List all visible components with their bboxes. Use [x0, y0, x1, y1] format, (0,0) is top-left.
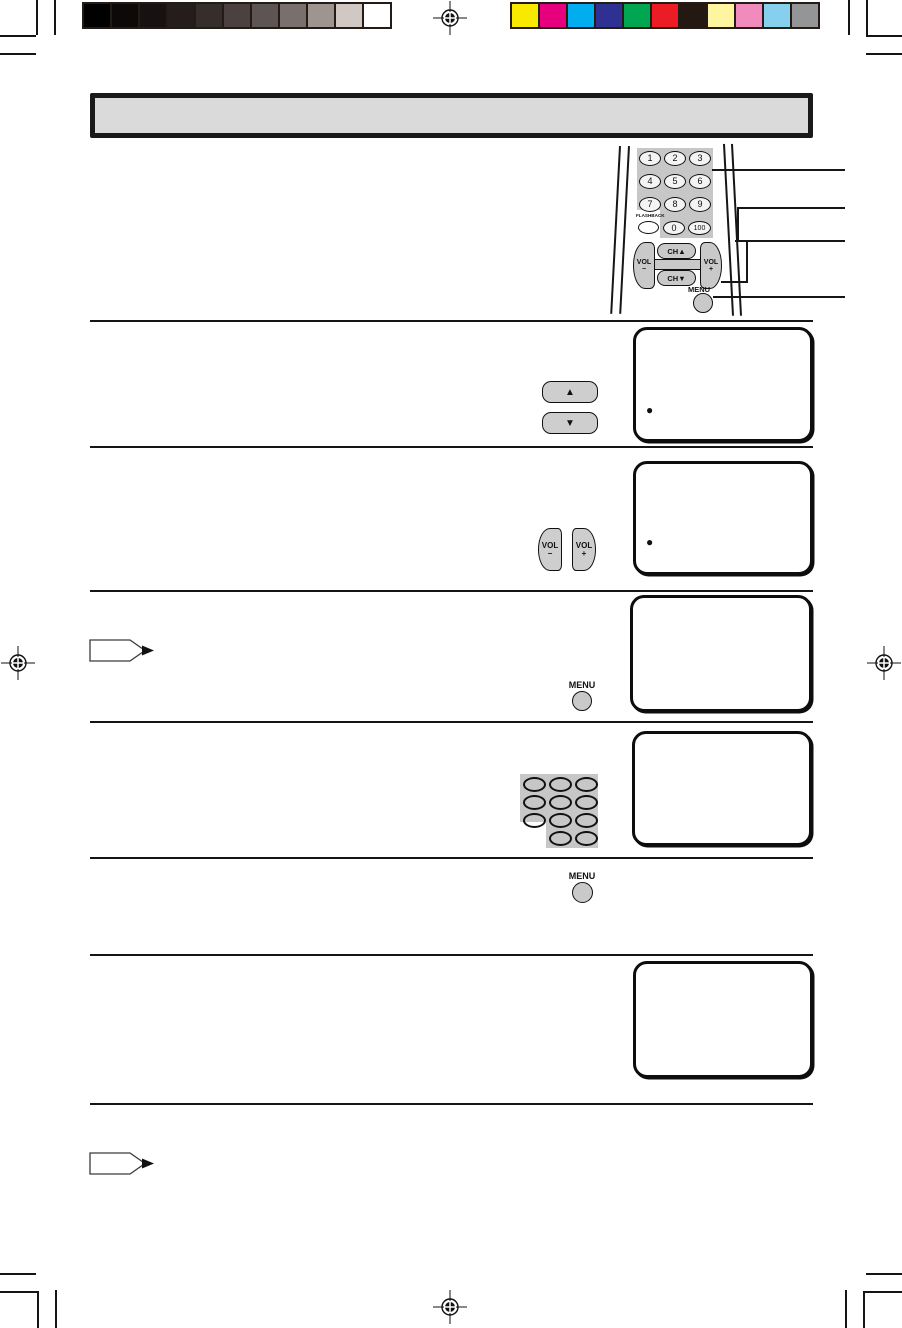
- registration-mark-icon: [433, 1, 467, 35]
- digit-label: 0: [671, 224, 676, 233]
- row-divider: [90, 590, 813, 592]
- up-arrow-icon: ▲: [565, 387, 575, 398]
- tv-display-box: [633, 961, 813, 1078]
- callout-line-menu: [713, 296, 845, 298]
- section-title-bar: [90, 93, 813, 138]
- grayscale-swatch: [224, 4, 250, 27]
- callout-line-number-pad: [712, 169, 845, 171]
- color-swatch: [568, 4, 594, 27]
- digit-0-button: 0: [663, 221, 685, 235]
- row-divider: [90, 320, 813, 322]
- color-calibration-bar: [510, 2, 820, 29]
- vol-label: VOL: [637, 259, 651, 266]
- keypad-key: [549, 795, 572, 810]
- crop-mark: [37, 1291, 39, 1328]
- crop-mark: [845, 1290, 847, 1328]
- tv-display-box: [632, 731, 812, 846]
- keypad-key: [549, 831, 572, 846]
- remote-channel-up-button: CH▲: [657, 243, 696, 259]
- remote-control-illustration: 1 2 3 4 5 6 7 8 9 0 100 FLASHBACK VOL − …: [600, 140, 902, 320]
- row-divider: [90, 1103, 813, 1105]
- grayscale-swatch: [252, 4, 278, 27]
- crop-mark: [848, 0, 850, 35]
- crop-mark: [36, 0, 38, 35]
- grayscale-swatch: [280, 4, 306, 27]
- digit-1-button: 1: [639, 151, 661, 166]
- keypad-key: [575, 777, 598, 792]
- cluster-connector: [650, 259, 704, 270]
- keypad-key: [523, 813, 546, 828]
- remote-vol-down-button: VOL −: [633, 242, 655, 289]
- crop-mark: [0, 35, 36, 37]
- digit-label: 1: [647, 154, 652, 163]
- color-swatch: [708, 4, 734, 27]
- minus-sign: −: [642, 266, 646, 273]
- grayscale-swatch: [308, 4, 334, 27]
- crop-mark: [0, 1291, 37, 1293]
- digit-label: 6: [697, 177, 702, 186]
- digit-label: 4: [647, 177, 652, 186]
- registration-mark-icon: [433, 1290, 467, 1324]
- remote-vol-up-button: VOL +: [700, 242, 722, 289]
- color-swatch: [624, 4, 650, 27]
- crop-mark: [866, 1273, 902, 1275]
- digit-4-button: 4: [639, 174, 661, 189]
- color-swatch: [512, 4, 538, 27]
- menu-label: MENU: [562, 871, 602, 881]
- keypad-key: [523, 795, 546, 810]
- digit-100-button: 100: [688, 221, 711, 235]
- flashback-label: FLASHBACK: [636, 213, 665, 218]
- digit-3-button: 3: [689, 151, 711, 166]
- registration-mark-icon: [1, 646, 35, 680]
- digit-6-button: 6: [689, 174, 711, 189]
- grayscale-swatch: [336, 4, 362, 27]
- plus-sign: +: [709, 266, 713, 273]
- color-swatch: [596, 4, 622, 27]
- note-pennant-icon: [89, 639, 161, 662]
- scanned-manual-page: 1 2 3 4 5 6 7 8 9 0 100 FLASHBACK VOL − …: [0, 0, 902, 1328]
- row-divider: [90, 721, 813, 723]
- digit-label: 7: [647, 200, 652, 209]
- color-swatch: [736, 4, 762, 27]
- callout-elbow-bottom-keys: [737, 207, 739, 240]
- channel-up-button: ▲: [542, 381, 598, 403]
- keypad-key: [523, 777, 546, 792]
- digit-8-button: 8: [664, 197, 686, 212]
- tv-display-box: ●: [633, 461, 813, 575]
- grayscale-swatch: [196, 4, 222, 27]
- row-divider: [90, 954, 813, 956]
- crop-mark: [865, 1291, 902, 1293]
- channel-down-button: ▼: [542, 412, 598, 434]
- tv-display-box: [630, 595, 812, 712]
- crop-mark: [0, 1273, 36, 1275]
- digit-label: 2: [672, 154, 677, 163]
- remote-channel-down-button: CH▼: [657, 270, 696, 286]
- keypad-key: [549, 777, 572, 792]
- display-bullet: ●: [646, 406, 653, 414]
- digit-5-button: 5: [664, 174, 686, 189]
- vol-label: VOL: [704, 259, 718, 266]
- remote-left-edge: [610, 146, 620, 314]
- menu-label: MENU: [562, 680, 602, 690]
- digit-7-button: 7: [639, 197, 661, 212]
- color-swatch: [652, 4, 678, 27]
- digit-label: 8: [672, 200, 677, 209]
- grayscale-swatch: [168, 4, 194, 27]
- note-pennant-icon: [89, 1152, 161, 1175]
- crop-mark: [54, 0, 56, 35]
- display-bullet: ●: [646, 538, 653, 546]
- callout-line-bottom-keys: [737, 207, 845, 209]
- digit-label: 100: [694, 224, 706, 233]
- registration-mark-icon: [867, 646, 901, 680]
- minus-sign: −: [548, 550, 553, 558]
- color-swatch: [792, 4, 818, 27]
- keypad-key: [575, 813, 598, 828]
- crop-mark: [866, 0, 868, 35]
- keypad-key: [575, 831, 598, 846]
- digit-label: 5: [672, 177, 677, 186]
- menu-button: [572, 882, 593, 903]
- callout-line-ch-vol-cluster: [735, 240, 845, 242]
- callout-bracket-stub: [721, 281, 748, 283]
- flashback-button: [638, 221, 659, 234]
- callout-bracket-vertical: [746, 240, 748, 283]
- grayscale-swatch: [112, 4, 138, 27]
- digit-9-button: 9: [689, 197, 711, 212]
- color-swatch: [764, 4, 790, 27]
- volume-up-button: VOL +: [572, 528, 596, 571]
- channel-up-label: CH▲: [667, 247, 685, 256]
- crop-mark: [0, 53, 36, 55]
- channel-down-label: CH▼: [667, 274, 685, 283]
- row-divider: [90, 446, 813, 448]
- keypad-key: [575, 795, 598, 810]
- crop-mark: [866, 53, 902, 55]
- tv-display-box: ●: [633, 327, 813, 442]
- remote-left-edge: [619, 146, 630, 314]
- plus-sign: +: [582, 550, 587, 558]
- volume-down-button: VOL −: [538, 528, 562, 571]
- digit-2-button: 2: [664, 151, 686, 166]
- crop-mark: [55, 1290, 57, 1328]
- grayscale-swatch: [84, 4, 110, 27]
- row-divider: [90, 857, 813, 859]
- color-swatch: [680, 4, 706, 27]
- digit-label: 9: [697, 200, 702, 209]
- digit-label: 3: [697, 154, 702, 163]
- down-arrow-icon: ▼: [565, 418, 575, 429]
- crop-mark: [866, 35, 902, 37]
- keypad-key: [549, 813, 572, 828]
- color-swatch: [540, 4, 566, 27]
- menu-button: [572, 691, 592, 711]
- grayscale-swatch: [140, 4, 166, 27]
- crop-mark: [863, 1291, 865, 1328]
- grayscale-swatch: [364, 4, 390, 27]
- grayscale-calibration-bar: [82, 2, 392, 29]
- remote-menu-button: [693, 293, 713, 313]
